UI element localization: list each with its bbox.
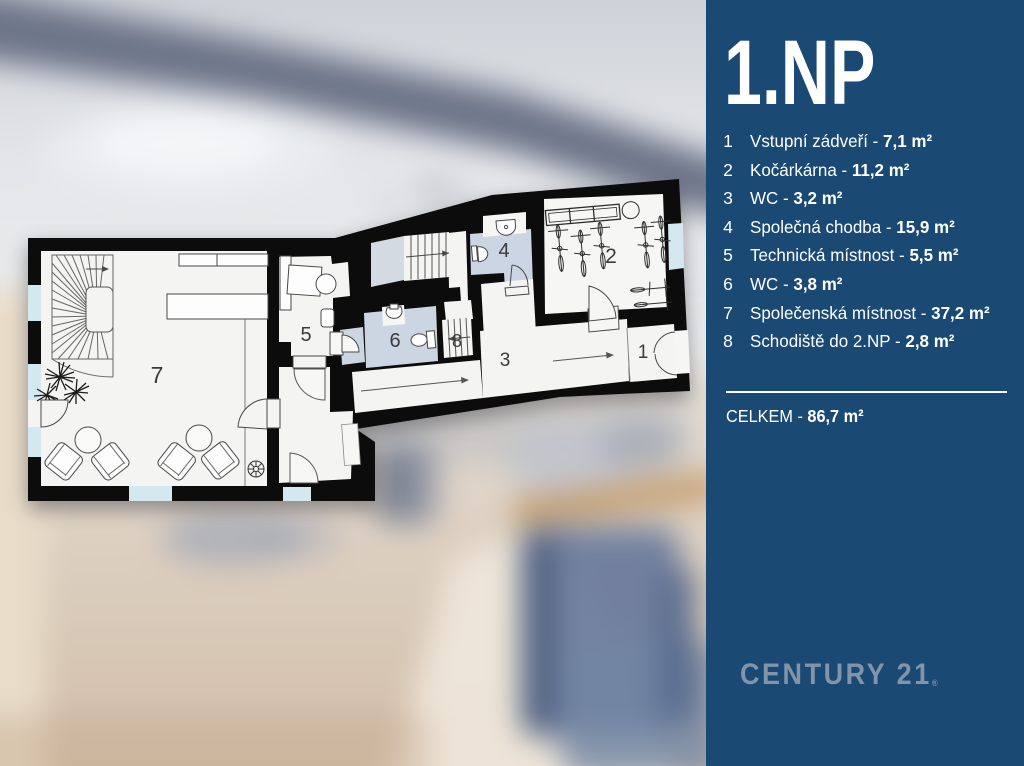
svg-text:2: 2 [605,245,617,268]
svg-text:3: 3 [500,350,511,371]
svg-text:5: 5 [300,324,311,346]
svg-text:6: 6 [389,330,400,352]
svg-text:7: 7 [151,362,164,388]
svg-text:4: 4 [498,240,509,262]
svg-text:8: 8 [452,331,462,351]
svg-text:1: 1 [638,342,649,363]
